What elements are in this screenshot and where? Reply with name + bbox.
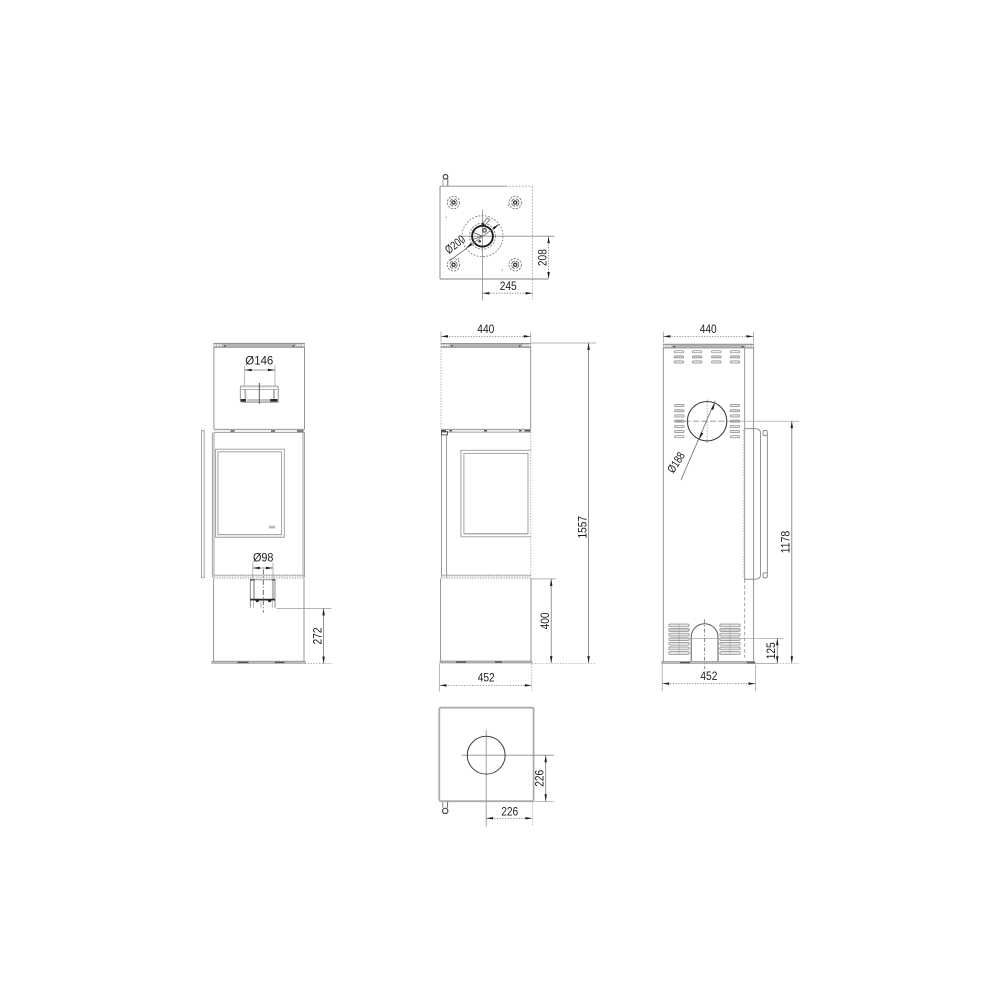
svg-text:1557: 1557: [576, 516, 589, 539]
svg-text:125: 125: [765, 642, 778, 659]
svg-text:226: 226: [534, 770, 547, 787]
svg-text:440: 440: [477, 323, 494, 336]
svg-text:1178: 1178: [780, 531, 793, 554]
svg-text:440: 440: [700, 323, 717, 336]
svg-text:Ø98: Ø98: [253, 551, 274, 564]
svg-text:452: 452: [478, 672, 495, 685]
svg-text:Ø146: Ø146: [245, 354, 273, 367]
svg-text:208: 208: [537, 249, 550, 266]
svg-text:452: 452: [700, 670, 717, 683]
svg-text:226: 226: [501, 805, 518, 818]
svg-text:245: 245: [500, 280, 517, 293]
svg-text:400: 400: [539, 612, 552, 629]
svg-text:272: 272: [311, 628, 324, 645]
